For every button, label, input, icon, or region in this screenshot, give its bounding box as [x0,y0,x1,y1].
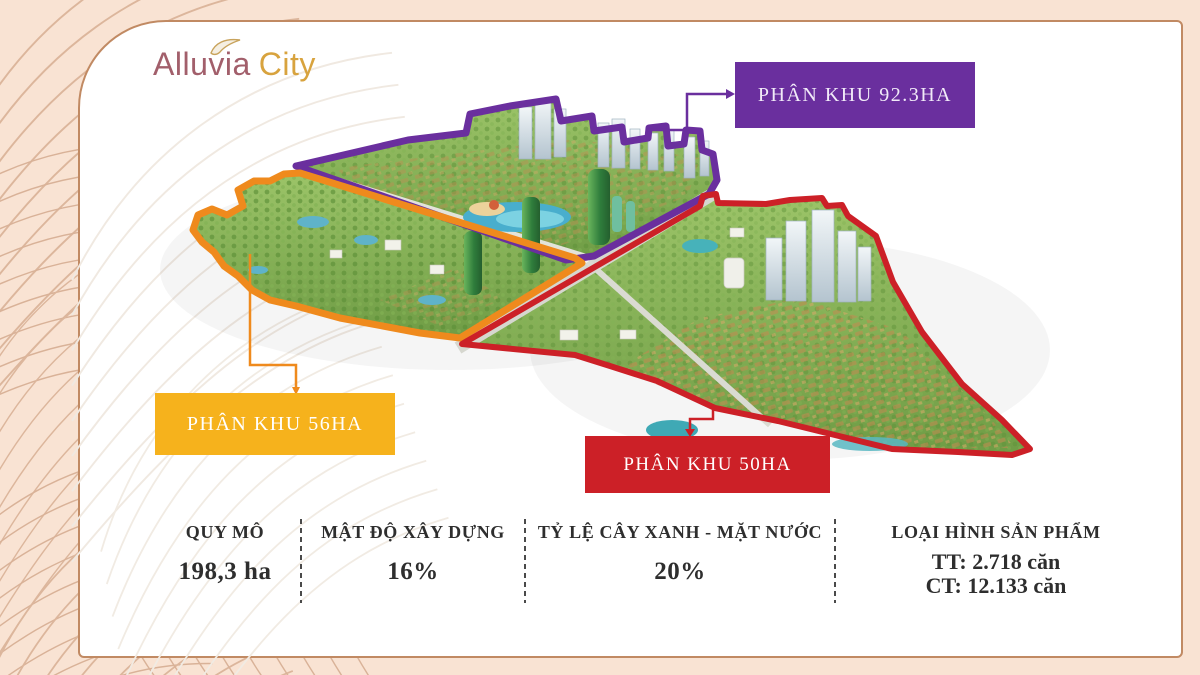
leaf-icon [209,37,243,57]
stat-product-types-label: LOẠI HÌNH SẢN PHẨM [836,522,1156,543]
stat-product-types-line2: CT: 12.133 căn [836,574,1156,598]
stat-density-label: MẬT ĐỘ XÂY DỰNG [302,522,524,543]
zone-label-56ha-text: PHÂN KHU 56HA [187,413,363,436]
stat-product-types: LOẠI HÌNH SẢN PHẨM TT: 2.718 căn CT: 12.… [836,516,1156,608]
stat-product-types-line1: TT: 2.718 căn [836,550,1156,574]
stat-green-ratio-value: 20% [526,558,834,586]
stat-green-ratio-label: TỶ LỆ CÂY XANH - MẶT NƯỚC [526,522,834,543]
zone-label-50ha: PHÂN KHU 50HA [585,436,830,493]
stat-density-value: 16% [302,558,524,586]
zone-label-56ha: PHÂN KHU 56HA [155,393,395,455]
stat-scale-label: QUY MÔ [150,522,300,543]
logo: AlluviaCity [153,46,316,83]
slide: AlluviaCity PHÂN KHU 92.3HA PHÂN KHU 56H… [0,0,1200,675]
stat-green-ratio: TỶ LỆ CÂY XANH - MẶT NƯỚC 20% [526,516,834,608]
zone-label-50ha-text: PHÂN KHU 50HA [623,454,791,476]
zone-label-92ha-text: PHÂN KHU 92.3HA [758,84,952,107]
stat-density: MẬT ĐỘ XÂY DỰNG 16% [302,516,524,608]
stat-scale-value: 198,3 ha [150,558,300,586]
stat-product-types-values: TT: 2.718 căn CT: 12.133 căn [836,550,1156,598]
zone-label-92ha: PHÂN KHU 92.3HA [735,62,975,128]
stats-bar: QUY MÔ 198,3 ha MẬT ĐỘ XÂY DỰNG 16% TỶ L… [150,516,1162,608]
stat-scale: QUY MÔ 198,3 ha [150,516,300,608]
logo-text-city: City [259,46,316,82]
